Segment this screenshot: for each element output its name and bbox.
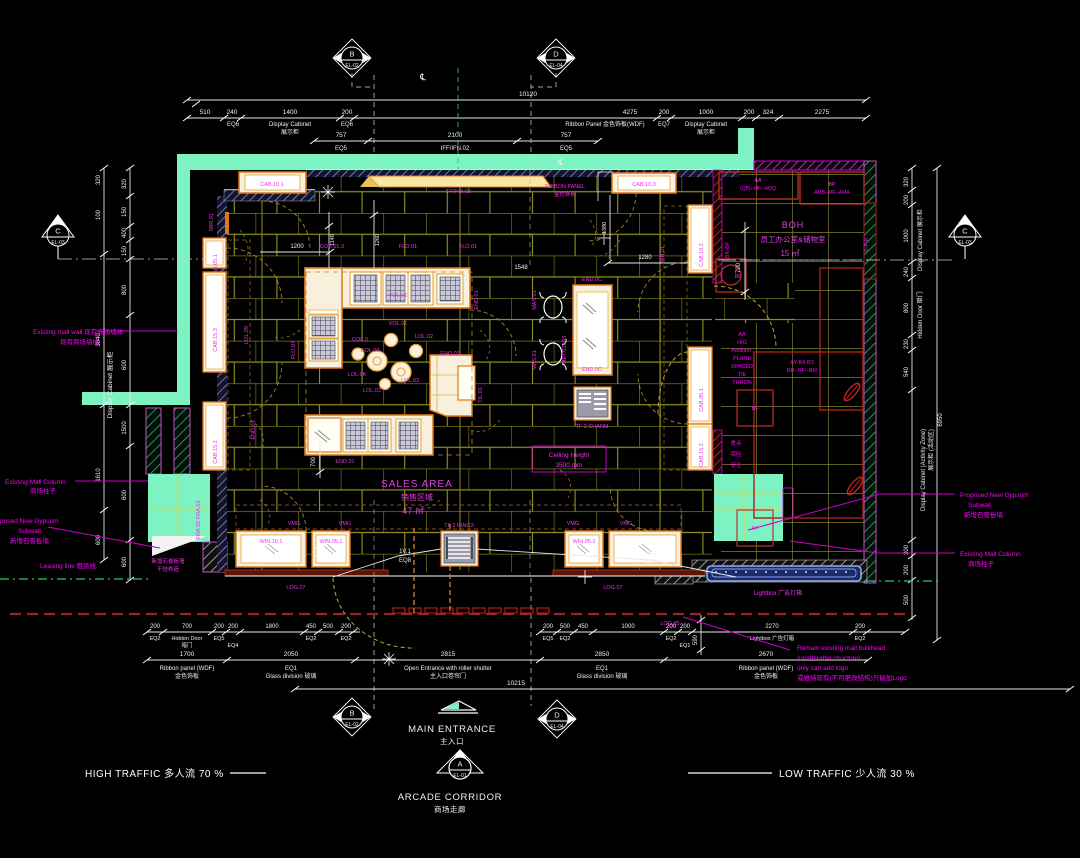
svg-text:EQ8: EQ8 — [399, 558, 412, 564]
svg-text:320: 320 — [96, 174, 102, 185]
svg-text:VOL.01: VOL.01 — [389, 321, 408, 327]
svg-text:200: 200 — [680, 624, 691, 630]
svg-text:END.0C: END.0C — [582, 277, 602, 283]
svg-text:展示柜: 展示柜 — [697, 128, 715, 136]
svg-text:Open Entrance with roller shut: Open Entrance with roller shutter — [404, 666, 492, 672]
svg-text:LOG.07: LOG.07 — [603, 585, 622, 591]
svg-text:Remain existing mall bulkhead: Remain existing mall bulkhead — [797, 645, 886, 652]
svg-text:商场柱子: 商场柱子 — [968, 559, 995, 568]
svg-text:1000: 1000 — [621, 624, 635, 630]
svg-text:Glass division 玻璃: Glass division 玻璃 — [266, 672, 317, 680]
svg-text:FLO.01: FLO.01 — [459, 244, 477, 250]
svg-text:LOL.02: LOL.02 — [415, 334, 433, 340]
svg-text:BB--BF--BM: BB--BF--BM — [787, 368, 817, 374]
svg-text:PLANE: PLANE — [733, 356, 751, 362]
svg-text:TIL.01: TIL.01 — [478, 387, 484, 403]
svg-text:1380: 1380 — [602, 222, 608, 234]
svg-text:1200: 1200 — [290, 244, 304, 250]
svg-text:EQ5: EQ5 — [335, 146, 348, 152]
svg-text:展示柜: 展示柜 — [281, 128, 299, 136]
svg-text:600: 600 — [122, 489, 128, 500]
svg-text:VMG: VMG — [339, 521, 352, 527]
svg-text:保险: 保险 — [730, 450, 742, 458]
svg-text:EL-03: EL-03 — [51, 240, 65, 246]
svg-text:EQ2: EQ2 — [559, 636, 570, 642]
svg-text:150: 150 — [122, 206, 128, 217]
svg-text:EL-02: EL-02 — [345, 722, 359, 728]
svg-text:EL-04: EL-04 — [549, 63, 563, 69]
svg-text:CAB.15.2: CAB.15.2 — [699, 443, 705, 467]
svg-text:1800: 1800 — [265, 624, 279, 630]
svg-text:757: 757 — [336, 132, 347, 139]
svg-text:COL.0: COL.0 — [352, 337, 368, 343]
svg-text:LOG.07: LOG.07 — [286, 585, 305, 591]
svg-text:1260: 1260 — [375, 234, 381, 246]
svg-text:MAS.01: MAS.01 — [532, 290, 538, 310]
svg-text:TF 2 RING3: TF 2 RING3 — [444, 523, 474, 529]
svg-text:800: 800 — [904, 302, 910, 313]
svg-text:500: 500 — [323, 624, 334, 630]
svg-text:AA: AA — [738, 332, 746, 338]
svg-text:47 ㎡: 47 ㎡ — [402, 506, 424, 516]
svg-text:AY-B4-B3: AY-B4-B3 — [790, 360, 814, 366]
svg-text:VMG: VMG — [288, 521, 301, 527]
svg-text:TF 2 CHARM: TF 2 CHARM — [576, 424, 609, 430]
svg-text:EL-02: EL-02 — [345, 63, 359, 69]
svg-text:15 ㎡: 15 ㎡ — [780, 249, 799, 258]
svg-text:Ceiling Height: Ceiling Height — [549, 452, 590, 459]
svg-text:暗门: 暗门 — [181, 641, 192, 649]
svg-text:新增石膏板墙: 新增石膏板墙 — [964, 510, 1004, 519]
svg-text:EQ2: EQ2 — [665, 636, 676, 642]
svg-text:400: 400 — [122, 227, 128, 238]
svg-text:1548: 1548 — [514, 265, 528, 271]
svg-text:MET.01&03: MET.01&03 — [562, 336, 568, 364]
svg-text:Proposed New Gypsum: Proposed New Gypsum — [960, 492, 1029, 499]
svg-text:EL-03: EL-03 — [958, 240, 972, 246]
svg-text:CAB.10.1: CAB.10.1 — [260, 182, 284, 188]
svg-text:IFF/FM.02: IFF/FM.02 — [445, 189, 470, 195]
svg-text:END.01: END.01 — [251, 420, 257, 439]
svg-text:Display Cabinet 展示柜: Display Cabinet 展示柜 — [105, 351, 114, 418]
svg-text:WIN.10.1: WIN.10.1 — [260, 539, 283, 545]
svg-text:Display Cabinet: Display Cabinet — [269, 122, 311, 128]
svg-text:THRON: THRON — [732, 380, 752, 386]
svg-text:2275: 2275 — [815, 109, 830, 116]
svg-text:240: 240 — [227, 109, 238, 116]
svg-text:Leasing line 租赁线: Leasing line 租赁线 — [40, 561, 96, 570]
svg-text:商场柱子: 商场柱子 — [30, 486, 57, 495]
svg-text:1500: 1500 — [122, 421, 128, 435]
svg-text:2815: 2815 — [441, 651, 456, 658]
svg-text:only can add logo: only can add logo — [797, 665, 848, 672]
svg-text:LOG.05: LOG.05 — [660, 621, 679, 627]
svg-text:CAB.10.3: CAB.10.3 — [632, 182, 656, 188]
svg-text:EQ1: EQ1 — [285, 666, 298, 672]
svg-text:LOL.02: LOL.02 — [363, 388, 381, 394]
svg-text:(unalterable structure): (unalterable structure) — [797, 655, 861, 662]
svg-text:Existing Mall Column: Existing Mall Column — [960, 551, 1021, 558]
svg-text:540: 540 — [904, 366, 910, 377]
svg-text:Display Cabinet: Display Cabinet — [685, 122, 727, 128]
svg-text:Hidden Door: Hidden Door — [172, 636, 203, 642]
svg-text:EQ4: EQ4 — [227, 643, 238, 649]
svg-text:BK-BF: BK-BF — [725, 241, 731, 258]
svg-text:EQ1: EQ1 — [679, 643, 690, 649]
svg-text:EQ6: EQ6 — [341, 122, 354, 128]
svg-text:700: 700 — [311, 456, 317, 467]
svg-text:AMB--MF--AMA: AMB--MF--AMA — [814, 190, 850, 196]
svg-text:商场走廊: 商场走廊 — [434, 804, 466, 814]
svg-text:WIN.05.1: WIN.05.1 — [320, 539, 343, 545]
svg-text:230: 230 — [904, 338, 910, 349]
svg-text:CAB.15.1: CAB.15.1 — [213, 440, 219, 464]
svg-text:1V.1: 1V.1 — [399, 549, 411, 555]
svg-text:安全: 安全 — [730, 461, 742, 469]
svg-text:TIE: TIE — [738, 372, 747, 378]
svg-text:1000: 1000 — [904, 229, 910, 243]
svg-text:BOH: BOH — [782, 220, 805, 230]
svg-text:B-F B: B-F B — [864, 238, 870, 252]
svg-text:MAIN ENTRANCE: MAIN ENTRANCE — [408, 724, 496, 735]
svg-text:450: 450 — [578, 624, 589, 630]
svg-text:CAB.85.1: CAB.85.1 — [699, 388, 705, 412]
svg-text:C: C — [962, 227, 968, 236]
svg-text:FRA.02 FRA.03: FRA.02 FRA.03 — [196, 501, 202, 540]
svg-text:7IL8: 7IL8 — [646, 550, 658, 556]
svg-text:LOW TRAFFIC 少人流 30 %: LOW TRAFFIC 少人流 30 % — [779, 767, 915, 780]
svg-text:324: 324 — [763, 109, 774, 116]
svg-text:10215: 10215 — [507, 680, 525, 687]
svg-text:销售区域: 销售区域 — [401, 492, 433, 502]
svg-text:700: 700 — [182, 624, 193, 630]
svg-text:2850: 2850 — [595, 651, 610, 658]
svg-text:Ribbon panel (WDF): Ribbon panel (WDF) — [160, 666, 215, 672]
svg-text:2670: 2670 — [759, 651, 774, 658]
svg-text:FLO.07: FLO.07 — [291, 341, 297, 359]
svg-text:MAS.01: MAS.01 — [532, 350, 538, 370]
svg-text:posed New Gypsum: posed New Gypsum — [0, 518, 59, 525]
svg-text:200: 200 — [543, 624, 554, 630]
svg-text:1280: 1280 — [638, 255, 652, 261]
svg-text:2100: 2100 — [448, 132, 463, 139]
svg-text:150: 150 — [122, 245, 128, 256]
svg-text:200: 200 — [341, 624, 352, 630]
svg-text:200: 200 — [744, 109, 755, 116]
svg-text:金色饰板: 金色饰板 — [754, 672, 778, 680]
svg-text:RIBBON PANEL: RIBBON PANEL — [545, 184, 585, 190]
svg-text:END.0C: END.0C — [582, 367, 602, 373]
svg-text:600: 600 — [122, 556, 128, 567]
svg-text:END.01: END.01 — [474, 290, 480, 309]
svg-text:200: 200 — [228, 624, 239, 630]
svg-text:EL-01: EL-01 — [453, 773, 467, 779]
svg-text:HIG: HIG — [737, 340, 747, 346]
svg-text:MIR.01: MIR.01 — [209, 213, 215, 231]
svg-text:WIH.05.1: WIH.05.1 — [573, 539, 596, 545]
svg-text:IFF/IFN.02: IFF/IFN.02 — [441, 146, 470, 152]
svg-text:4275: 4275 — [623, 109, 638, 116]
svg-text:D: D — [554, 711, 560, 720]
svg-text:WIR.01: WIR.01 — [660, 246, 666, 264]
svg-text:COL.02: COL.02 — [361, 348, 380, 354]
svg-text:LOL.03: LOL.03 — [401, 378, 419, 384]
svg-text:END.01: END.01 — [335, 459, 354, 465]
svg-text:1700: 1700 — [180, 651, 195, 658]
svg-text:3500 mm: 3500 mm — [555, 462, 582, 469]
svg-text:主入口卷帘门: 主入口卷帘门 — [430, 672, 466, 680]
svg-text:CAB.15.3: CAB.15.3 — [213, 328, 219, 352]
svg-text:Lightbox 广告灯箱: Lightbox 广告灯箱 — [754, 589, 802, 597]
svg-text:C: C — [55, 227, 61, 236]
svg-text:Lightbox 广告灯箱: Lightbox 广告灯箱 — [750, 634, 795, 642]
svg-text:食点: 食点 — [730, 439, 742, 447]
svg-text:200: 200 — [659, 109, 670, 116]
svg-text:展示柜 (活动区): 展示柜 (活动区) — [927, 429, 935, 471]
svg-text:EQ7: EQ7 — [658, 122, 671, 128]
svg-text:Display Cabinet 展示柜: Display Cabinet 展示柜 — [916, 209, 924, 271]
svg-text:Ribbon Panel 金色饰板(WDF): Ribbon Panel 金色饰板(WDF) — [565, 120, 644, 128]
svg-text:Glass division 玻璃: Glass division 玻璃 — [577, 672, 628, 680]
svg-text:EL-04: EL-04 — [550, 724, 564, 730]
svg-text:BP: BP — [828, 182, 836, 188]
svg-text:员工办公室&储物室: 员工办公室&储物室 — [760, 234, 826, 244]
svg-text:BF: BF — [751, 406, 759, 412]
svg-text:EQ5: EQ5 — [213, 636, 224, 642]
svg-text:320: 320 — [904, 176, 910, 187]
svg-text:100: 100 — [96, 209, 102, 220]
svg-text:6950: 6950 — [938, 413, 944, 427]
svg-text:℄: ℄ — [557, 158, 564, 167]
svg-text:800: 800 — [122, 284, 128, 295]
svg-text:450: 450 — [306, 624, 317, 630]
svg-text:EHO.01: EHO.01 — [440, 351, 460, 357]
svg-text:现有商场墙体: 现有商场墙体 — [60, 337, 100, 346]
svg-text:VMG: VMG — [620, 521, 633, 527]
svg-text:VMG: VMG — [567, 521, 580, 527]
svg-text:AA: AA — [754, 178, 762, 184]
svg-text:320: 320 — [122, 178, 128, 189]
svg-text:500: 500 — [904, 594, 910, 605]
svg-text:金色饰板: 金色饰板 — [554, 190, 577, 198]
svg-text:EQ2: EQ2 — [854, 636, 865, 642]
svg-text:EQ1: EQ1 — [596, 666, 609, 672]
svg-text:A: A — [457, 760, 462, 769]
svg-text:500: 500 — [560, 624, 571, 630]
svg-text:2270: 2270 — [765, 624, 779, 630]
svg-text:200: 200 — [150, 624, 161, 630]
svg-text:干挂构造: 干挂构造 — [157, 565, 180, 573]
svg-text:℄: ℄ — [419, 72, 426, 82]
svg-text:200: 200 — [904, 194, 910, 205]
svg-text:主入口: 主入口 — [440, 736, 464, 746]
svg-text:或维持现有(不可更改结构)只能加Logo: 或维持现有(不可更改结构)只能加Logo — [797, 673, 907, 682]
svg-text:200: 200 — [904, 564, 910, 575]
svg-text:新增石膏板墙: 新增石膏板墙 — [10, 536, 50, 545]
svg-text:SPACED: SPACED — [731, 364, 753, 370]
svg-text:新增石膏板墙: 新增石膏板墙 — [151, 557, 185, 565]
svg-text:EQ2: EQ2 — [149, 636, 160, 642]
svg-text:EQ2: EQ2 — [340, 636, 351, 642]
svg-text:Subwall: Subwall — [968, 502, 991, 509]
svg-text:EQ8: EQ8 — [646, 559, 659, 565]
svg-text:B: B — [349, 50, 354, 59]
svg-text:Ribbon panel (WDF): Ribbon panel (WDF) — [739, 666, 794, 672]
svg-text:LOL.0K: LOL.0K — [348, 372, 367, 378]
svg-text:(QB)--MF--#B/Q: (QB)--MF--#B/Q — [740, 186, 776, 192]
svg-text:金色饰板: 金色饰板 — [175, 672, 199, 680]
svg-text:EQ5: EQ5 — [560, 146, 573, 152]
svg-text:Existing Mall Column: Existing Mall Column — [5, 479, 66, 486]
svg-text:ARCADE CORRIDOR: ARCADE CORRIDOR — [398, 792, 502, 803]
svg-text:EQ2: EQ2 — [305, 636, 316, 642]
svg-text:200: 200 — [855, 624, 866, 630]
svg-text:D: D — [553, 50, 559, 59]
svg-text:FLO.01: FLO.01 — [399, 244, 417, 250]
svg-text:Display Cabinet (Activity Zone: Display Cabinet (Activity Zone) — [921, 429, 927, 511]
svg-text:EQ6: EQ6 — [227, 122, 240, 128]
svg-text:VOL.01: VOL.01 — [389, 293, 408, 299]
svg-text:Subwall: Subwall — [18, 528, 41, 535]
svg-text:200: 200 — [214, 624, 225, 630]
svg-text:HIGH TRAFFIC 多人流 70 %: HIGH TRAFFIC 多人流 70 % — [85, 767, 224, 780]
svg-text:590: 590 — [693, 634, 699, 645]
svg-text:757: 757 — [561, 132, 572, 139]
svg-text:200: 200 — [342, 109, 353, 116]
svg-text:LOL.09: LOL.09 — [244, 326, 250, 344]
svg-text:510: 510 — [200, 109, 211, 116]
svg-text:240: 240 — [904, 266, 910, 277]
svg-text:600: 600 — [122, 359, 128, 370]
svg-text:10120: 10120 — [519, 91, 537, 98]
svg-text:1610: 1610 — [96, 468, 102, 482]
svg-text:Addition-: Addition- — [731, 348, 753, 354]
svg-text:COB.01.3: COB.01.3 — [320, 244, 344, 250]
svg-text:700: 700 — [736, 262, 742, 273]
svg-text:2050: 2050 — [284, 651, 299, 658]
svg-text:B: B — [349, 709, 354, 718]
svg-text:SALES AREA: SALES AREA — [381, 479, 453, 490]
svg-text:1000: 1000 — [699, 109, 714, 116]
svg-text:B6: B6 — [735, 274, 742, 280]
svg-text:Hidden Door 暗门: Hidden Door 暗门 — [916, 291, 924, 338]
svg-text:EQ5: EQ5 — [542, 636, 553, 642]
svg-text:1400: 1400 — [283, 109, 298, 116]
